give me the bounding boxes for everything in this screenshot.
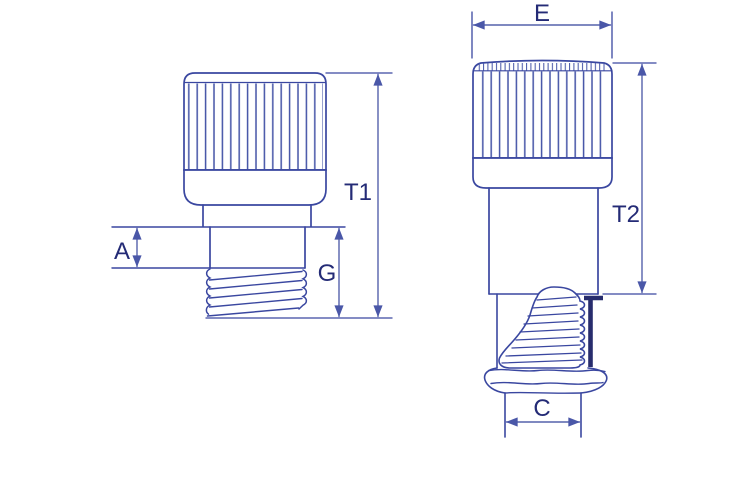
neck bbox=[203, 205, 311, 227]
thread-bottom-edge bbox=[208, 308, 299, 316]
collar-mid-wave bbox=[491, 383, 603, 385]
dim-label-t2: T2 bbox=[612, 201, 640, 228]
drawing-canvas: T1 A G bbox=[0, 0, 750, 496]
dim-label-a: A bbox=[114, 238, 130, 265]
cap-dome-ticks bbox=[478, 63, 607, 71]
knurled-cap bbox=[184, 73, 326, 170]
knurl-texture bbox=[187, 84, 323, 170]
thread-crest-lines bbox=[210, 272, 303, 308]
dim-label-e: E bbox=[534, 0, 550, 27]
dim-label-t1: T1 bbox=[344, 179, 372, 206]
stem-top-edge bbox=[505, 393, 581, 394]
section-cut-edge bbox=[584, 296, 603, 367]
knurl-texture bbox=[477, 72, 608, 158]
external-thread bbox=[206, 269, 306, 316]
dim-label-c: C bbox=[533, 395, 550, 422]
cap-base bbox=[184, 170, 326, 205]
dim-label-g: G bbox=[318, 260, 337, 287]
internal-thread-section bbox=[499, 287, 603, 368]
cap-base bbox=[473, 158, 612, 188]
collar-top-wave bbox=[489, 370, 605, 372]
left-view: T1 A G bbox=[112, 73, 392, 318]
technical-drawing: T1 A G bbox=[0, 0, 750, 496]
knurled-cap-section bbox=[473, 61, 612, 159]
body bbox=[112, 227, 345, 268]
collar-rings bbox=[485, 368, 607, 393]
right-view: E T2 C bbox=[472, 0, 656, 437]
